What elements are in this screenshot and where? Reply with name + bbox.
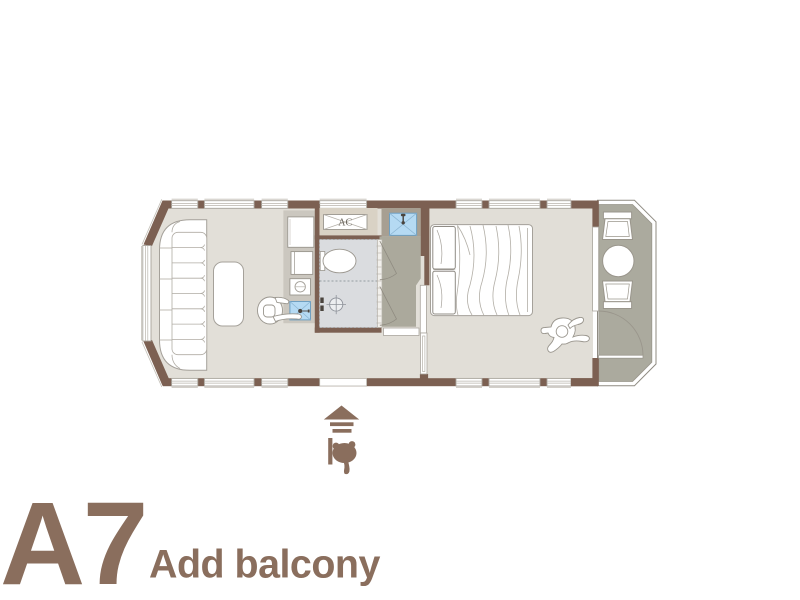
svg-text:Add balcony: Add balcony bbox=[149, 543, 380, 587]
svg-text:AC: AC bbox=[338, 218, 352, 229]
svg-text:A7: A7 bbox=[0, 478, 146, 600]
